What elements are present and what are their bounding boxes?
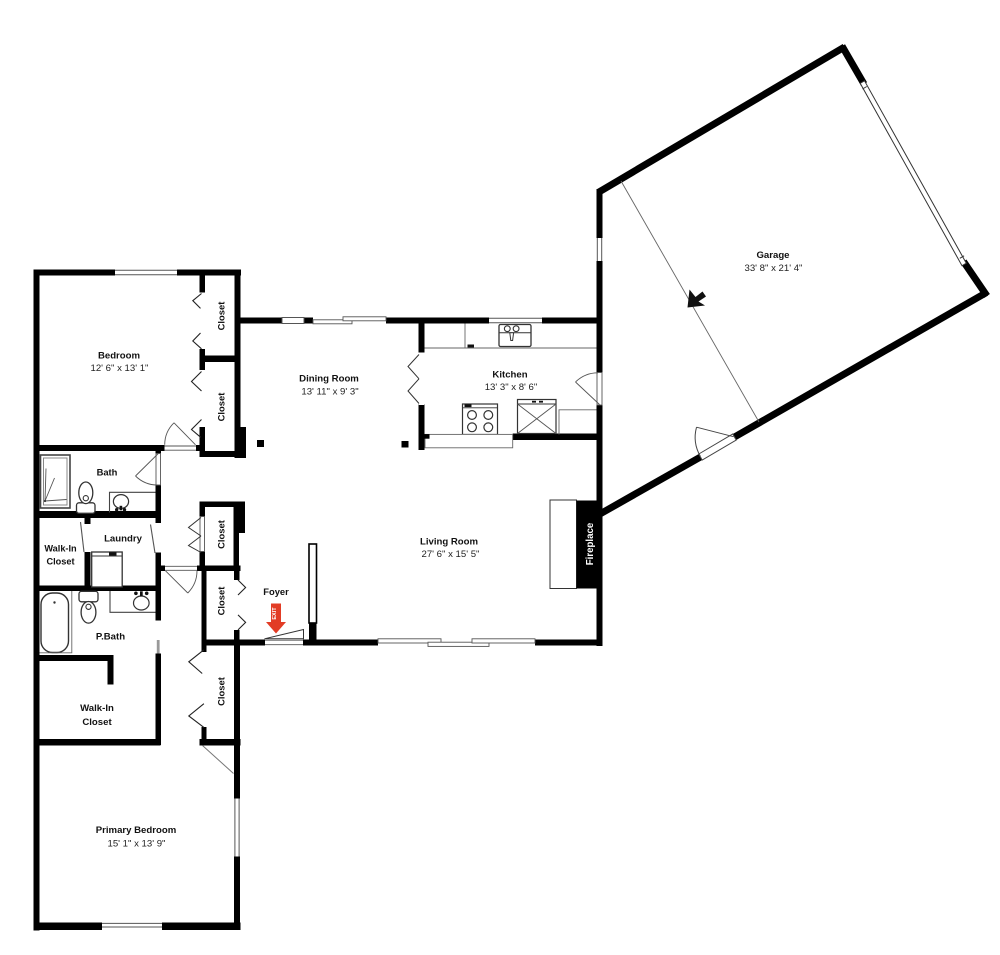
svg-text:Walk-In: Walk-In xyxy=(44,544,77,554)
svg-text:Bedroom: Bedroom xyxy=(98,351,140,362)
svg-text:12' 6" x 13' 1": 12' 6" x 13' 1" xyxy=(91,363,149,374)
svg-text:13' 11" x 9' 3": 13' 11" x 9' 3" xyxy=(301,387,358,398)
svg-text:Foyer: Foyer xyxy=(263,586,289,597)
svg-text:P.Bath: P.Bath xyxy=(96,632,125,643)
svg-text:Closet: Closet xyxy=(216,520,227,549)
svg-text:EXIT: EXIT xyxy=(272,607,278,620)
svg-text:Garage: Garage xyxy=(756,250,789,261)
svg-text:Walk-In: Walk-In xyxy=(80,703,114,714)
svg-text:Bath: Bath xyxy=(97,467,118,478)
svg-text:33' 8" x 21' 4": 33' 8" x 21' 4" xyxy=(745,263,803,274)
svg-text:Closet: Closet xyxy=(46,557,74,567)
svg-text:Primary Bedroom: Primary Bedroom xyxy=(96,825,177,836)
svg-text:Closet: Closet xyxy=(216,677,227,706)
svg-text:13' 3" x 8' 6": 13' 3" x 8' 6" xyxy=(485,382,538,393)
svg-text:Laundry: Laundry xyxy=(104,534,143,545)
svg-text:Closet: Closet xyxy=(216,587,227,616)
svg-text:Kitchen: Kitchen xyxy=(492,370,527,381)
svg-text:Closet: Closet xyxy=(216,302,227,331)
svg-text:Dining Room: Dining Room xyxy=(299,374,359,385)
svg-text:Closet: Closet xyxy=(216,393,227,422)
svg-text:Closet: Closet xyxy=(82,717,112,728)
svg-text:15' 1" x 13' 9": 15' 1" x 13' 9" xyxy=(108,839,166,850)
svg-text:Living Room: Living Room xyxy=(420,537,478,548)
svg-text:Fireplace: Fireplace xyxy=(585,522,596,565)
svg-text:27' 6" x 15' 5": 27' 6" x 15' 5" xyxy=(422,549,480,560)
